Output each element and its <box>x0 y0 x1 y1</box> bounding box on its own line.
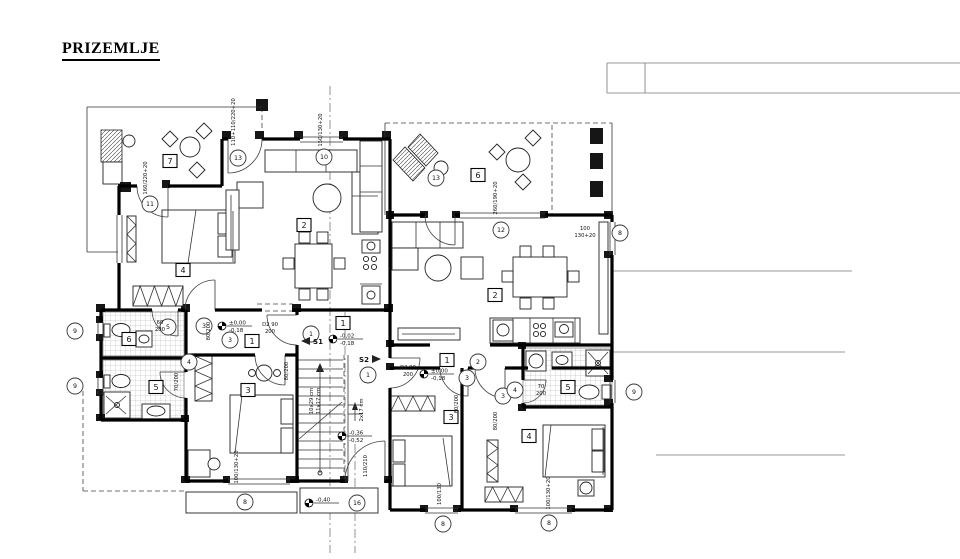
furniture-circle <box>363 256 368 261</box>
dimension-text: D2 90 <box>262 322 279 328</box>
furniture-rect <box>599 222 608 334</box>
furniture-path <box>162 131 178 147</box>
dimension-text: 200 <box>155 327 166 333</box>
furniture-circle <box>497 324 509 336</box>
floor-plan-svg: 7421653162134599111310121389888335423341… <box>0 0 960 559</box>
dimension-text: 260/190+20 <box>493 181 499 215</box>
ref-bubble-number: 3 <box>465 375 469 382</box>
furniture-rect <box>104 375 110 388</box>
furniture-circle <box>425 255 451 281</box>
furniture-circle <box>249 370 256 377</box>
furniture-rect <box>592 429 604 450</box>
dimension-text: 10x29 cm <box>309 388 315 414</box>
dimension-text: 80/200 <box>284 361 290 380</box>
ref-bubble-number: 1 <box>366 372 370 379</box>
room-number: 1 <box>249 337 254 346</box>
ref-bubble-number: 13 <box>432 175 440 182</box>
ref-bubble-number: 16 <box>353 500 361 507</box>
fixture-ellipse <box>139 335 149 343</box>
level-value: ±0,00 <box>229 321 246 327</box>
furniture-path <box>515 174 531 190</box>
furniture-circle <box>115 403 120 408</box>
ref-bubble-number: 8 <box>618 230 622 237</box>
fixture-ellipse <box>147 406 165 416</box>
furniture-rect <box>392 248 418 270</box>
ref-bubble-number: 9 <box>73 328 77 335</box>
furniture-circle <box>371 256 376 261</box>
level-value: -0,18 <box>340 341 355 347</box>
dimension-text: 110/210 <box>363 454 369 477</box>
furniture-rect <box>392 222 463 248</box>
fixture-ellipse <box>579 385 599 399</box>
dimension-text: 70 <box>538 384 545 390</box>
ref-bubble-number: 3 <box>228 337 232 344</box>
ref-bubble-number: 8 <box>243 499 247 506</box>
furniture-rect <box>543 298 554 309</box>
furniture-circle <box>180 137 200 157</box>
furniture-circle <box>533 331 538 336</box>
furniture-rect <box>568 271 579 282</box>
furniture-circle <box>367 242 375 250</box>
furniture-rect <box>502 271 513 282</box>
furniture-circle <box>274 370 281 377</box>
dimension-text: 80/200 <box>454 394 460 413</box>
level-value: -0,18 <box>431 376 446 382</box>
room-number: 6 <box>126 335 131 344</box>
floor-plan-page: PRIZEMLJE 742165316213459911131012138988… <box>0 0 960 559</box>
furniture-circle <box>363 264 368 269</box>
wall-pillar <box>590 181 603 197</box>
furniture-rect <box>265 150 357 172</box>
dimension-text: 200 <box>536 391 547 397</box>
level-value: -0,02 <box>340 334 354 340</box>
furniture-rect <box>393 464 405 486</box>
dimension-text: 11x17 cm <box>316 388 322 414</box>
furniture-rect <box>317 289 328 300</box>
furniture-rect <box>317 232 328 243</box>
dimension-text: 130+20 <box>574 233 596 239</box>
ref-bubble-number: 11 <box>146 201 154 208</box>
ref-bubble-number: 2 <box>476 359 480 366</box>
fixture-ellipse <box>556 356 568 365</box>
ref-bubble-number: 4 <box>513 387 517 394</box>
furniture-rect <box>393 440 405 462</box>
room-number: 4 <box>180 266 185 275</box>
dimension-text: 200 <box>265 329 276 335</box>
furniture-circle <box>540 323 545 328</box>
level-value: -0,36 <box>349 431 364 437</box>
furniture-rect <box>226 190 239 250</box>
ref-bubble-number: 12 <box>497 227 505 234</box>
ref-bubble-number: 9 <box>73 383 77 390</box>
furniture-rect <box>360 141 382 232</box>
furniture-path <box>196 123 212 139</box>
dimension-text: 80/200 <box>206 321 212 340</box>
furniture-rect <box>281 399 293 424</box>
ref-bubble-number: 5 <box>166 324 170 331</box>
dimension-text: 100/130+20 <box>234 450 240 484</box>
room-number: 6 <box>475 171 480 180</box>
ref-bubble-number: 9 <box>632 389 636 396</box>
furniture-rect <box>281 428 293 453</box>
dimension-text: 80/200 <box>493 411 499 430</box>
furniture-rect <box>104 324 110 337</box>
furniture-circle <box>533 323 538 328</box>
dimension-text: 100/130 <box>437 482 443 505</box>
ref-bubble-number: 10 <box>320 154 328 161</box>
furniture-rect <box>295 244 332 288</box>
wall-pillar <box>590 153 603 169</box>
furniture-rect <box>283 258 294 269</box>
section-mark-arrow <box>372 355 381 363</box>
dimension-text: 150/130+20 <box>318 113 324 147</box>
dimension-text: 100 <box>580 226 591 232</box>
furniture-circle <box>529 354 543 368</box>
furniture-path <box>489 144 505 160</box>
level-value: -0,18 <box>229 328 244 334</box>
room-number: 2 <box>492 291 497 300</box>
furniture-rect <box>103 162 122 184</box>
room-number: 7 <box>167 157 172 166</box>
room-number: 3 <box>448 413 453 422</box>
furniture-circle <box>313 184 341 212</box>
furniture-path <box>189 162 205 178</box>
furniture-circle <box>560 325 569 334</box>
ref-bubble-number: 4 <box>187 359 191 366</box>
dimension-text: 200 <box>403 372 414 378</box>
ref-bubble-number: 8 <box>441 521 445 528</box>
furniture-rect <box>299 289 310 300</box>
wall-pillar <box>256 99 268 111</box>
furniture-circle <box>580 482 592 494</box>
furniture-path <box>525 130 541 146</box>
dimension-text: 100/130+20 <box>546 476 552 510</box>
furniture-circle <box>540 331 545 336</box>
dimension-text: D2 90 <box>400 365 417 371</box>
ref-bubble-number: 3 <box>501 393 505 400</box>
furniture-circle <box>367 291 375 299</box>
furniture-rect <box>101 130 122 162</box>
site-lines <box>607 63 960 455</box>
wall-pillar <box>96 334 103 341</box>
furniture-rect <box>592 451 604 472</box>
furniture-circle <box>506 148 530 172</box>
room-number: 5 <box>565 383 570 392</box>
furniture-rect <box>520 246 531 257</box>
section-mark-label: S1 <box>313 338 323 346</box>
furniture-rect <box>237 182 263 208</box>
dimension-text: 160/220+20 <box>143 161 149 195</box>
fixture-ellipse <box>112 375 130 388</box>
room-number: 4 <box>526 432 531 441</box>
furniture-rect <box>513 257 567 297</box>
furniture-rect <box>461 257 483 279</box>
furniture-circle <box>208 458 220 470</box>
furniture-circle <box>123 135 135 147</box>
wall-pillar <box>96 389 103 396</box>
dimension-text: 60 <box>157 320 164 326</box>
ref-bubble-number: 13 <box>234 155 242 162</box>
level-value: -0,40 <box>316 498 331 504</box>
level-value: -0,52 <box>349 438 363 444</box>
furniture-rect <box>188 450 210 477</box>
ref-bubble-number: 8 <box>547 520 551 527</box>
room-number: 3 <box>245 386 250 395</box>
dimension-text: 2x17 cm <box>359 398 365 421</box>
dimension-text: 70/200 <box>174 372 180 391</box>
room-number: 1 <box>444 356 449 365</box>
furniture-rect <box>334 258 345 269</box>
room-number: 5 <box>153 383 158 392</box>
level-value: ±0,00 <box>431 369 448 375</box>
furniture-rect <box>543 246 554 257</box>
section-mark-label: S2 <box>359 356 369 364</box>
furniture-circle <box>256 365 272 381</box>
dimension-text: 110+110/220+20 <box>231 98 237 146</box>
furniture-rect <box>520 298 531 309</box>
furniture-circle <box>371 264 376 269</box>
room-number: 2 <box>301 221 306 230</box>
room-number: 1 <box>340 319 345 328</box>
furniture-rect <box>299 232 310 243</box>
wall-pillar <box>590 128 603 144</box>
